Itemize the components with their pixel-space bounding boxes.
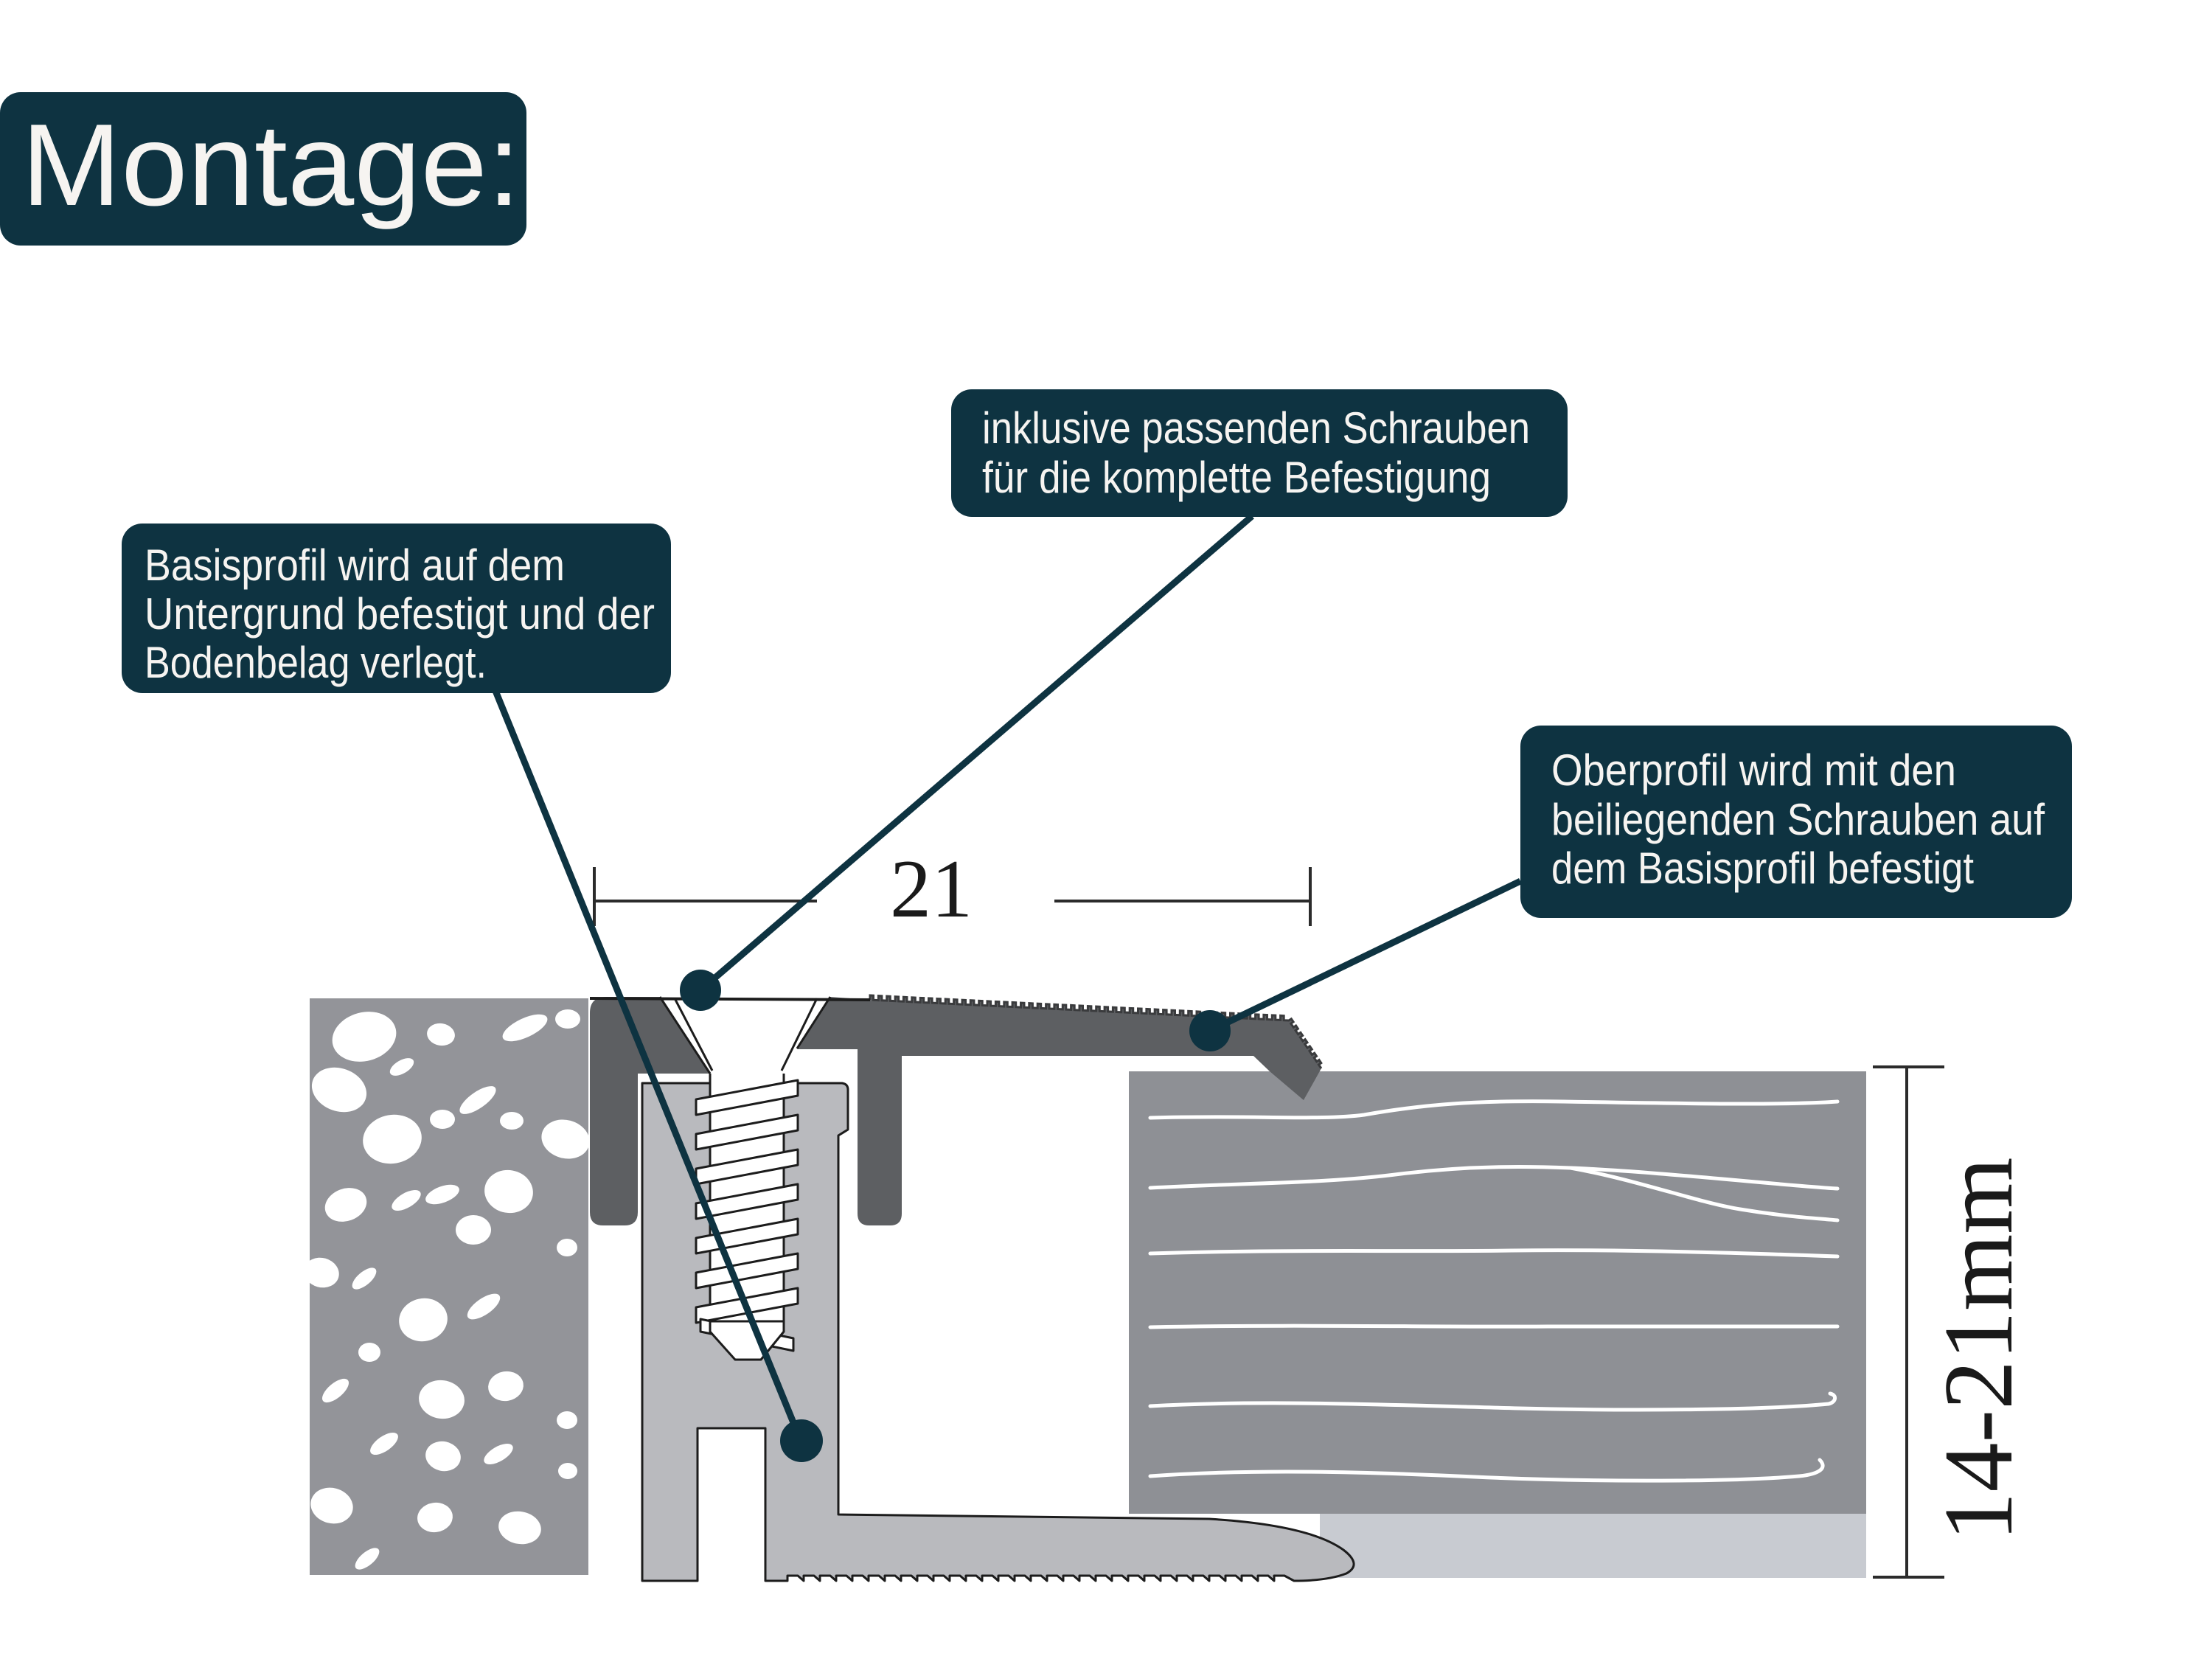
svg-text:Oberprofil wird mit den: Oberprofil wird mit den [1551,745,1956,795]
svg-text:für die komplette Befestigung: für die komplette Befestigung [982,453,1491,502]
svg-text:dem Basisprofil befestigt: dem Basisprofil befestigt [1551,844,1974,893]
svg-text:Basisprofil wird auf dem: Basisprofil wird auf dem [145,540,565,590]
svg-text:inklusive passenden Schrauben: inklusive passenden Schrauben [982,403,1530,453]
svg-text:beiliegenden Schrauben auf: beiliegenden Schrauben auf [1551,795,2045,844]
svg-text:21: 21 [890,844,973,935]
svg-text:14-21mm: 14-21mm [1924,1157,2033,1541]
svg-text:Montage:: Montage: [21,100,521,230]
svg-text:Bodenbelag verlegt.: Bodenbelag verlegt. [145,638,487,687]
svg-text:Untergrund befestigt und der: Untergrund befestigt und der [145,589,655,639]
